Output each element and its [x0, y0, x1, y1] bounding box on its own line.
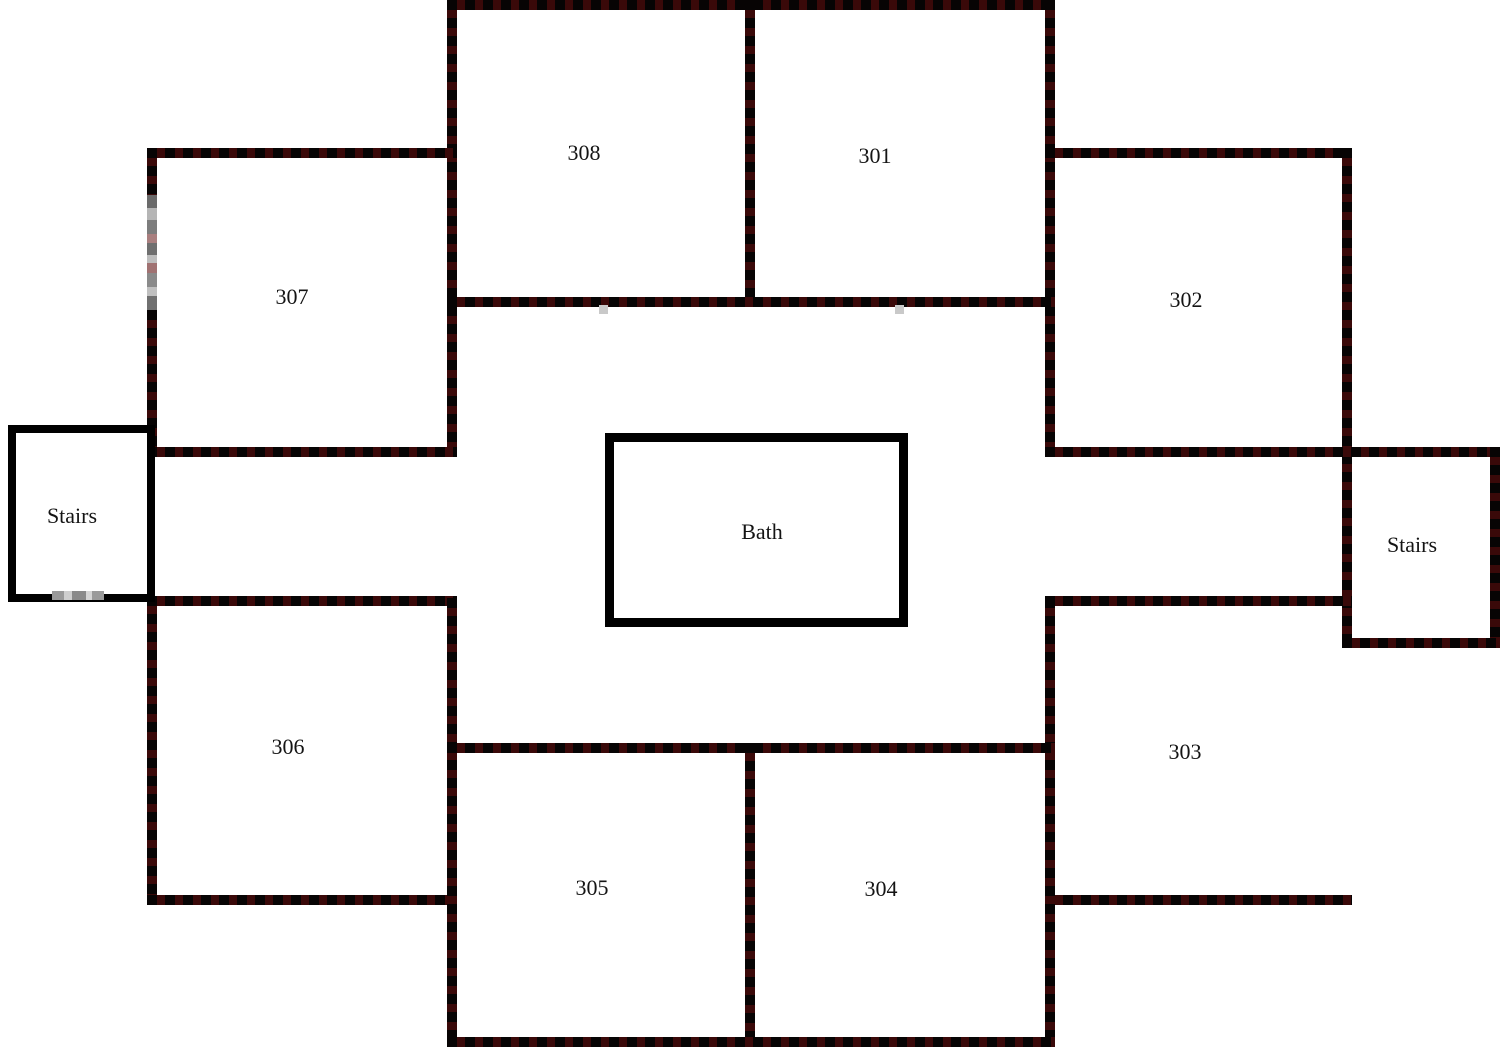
room-308-area: [457, 10, 745, 297]
room-label-301: 301: [859, 145, 892, 167]
artifact-gray-dot-left: [599, 305, 608, 314]
wall-302-right-stairs-left: [1342, 148, 1352, 648]
wall-left-upper-vertical: [447, 0, 457, 457]
wall-302-bottom-stairs-top: [1045, 447, 1500, 457]
stairs-right-label: Stairs: [1387, 534, 1437, 556]
wall-306-left: [147, 596, 157, 905]
room-label-303: 303: [1169, 741, 1202, 763]
wall-stairs-right-bottom: [1342, 638, 1500, 648]
wall-302-top: [1045, 148, 1352, 158]
room-label-305: 305: [576, 877, 609, 899]
floor-plan: 308 301 307 302 Stairs Bath Stairs 306 3…: [0, 0, 1500, 1059]
room-label-307: 307: [276, 286, 309, 308]
wall-306-top: [147, 596, 457, 606]
stairs-left-label: Stairs: [47, 505, 97, 527]
artifact-gray-dot-right: [895, 305, 904, 314]
artifact-gray-smudge-left-wall: [147, 195, 157, 310]
wall-stairs-right-outer: [1490, 447, 1500, 648]
wall-306-bottom: [147, 895, 457, 905]
wall-right-upper-vertical: [1045, 0, 1055, 457]
bath-label: Bath: [741, 521, 783, 543]
room-label-304: 304: [865, 878, 898, 900]
wall-307-top: [147, 148, 457, 158]
wall-hallway-top: [447, 297, 1055, 307]
wall-303-top: [1045, 596, 1352, 606]
wall-303-bottom: [1045, 895, 1352, 905]
wall-divider-305-304: [745, 743, 755, 1047]
room-label-302: 302: [1170, 289, 1203, 311]
room-label-308: 308: [568, 142, 601, 164]
wall-307-bottom: [147, 447, 457, 457]
room-304-area: [755, 753, 1045, 1037]
wall-left-lower-vertical: [447, 598, 457, 1047]
wall-right-lower-vertical: [1045, 598, 1055, 1047]
wall-divider-308-301: [745, 0, 755, 307]
artifact-gray-smudge-stairs: [52, 591, 104, 600]
room-label-306: 306: [272, 736, 305, 758]
room-301-area: [755, 10, 1045, 297]
wall-bottom-outer: [447, 1037, 1055, 1047]
